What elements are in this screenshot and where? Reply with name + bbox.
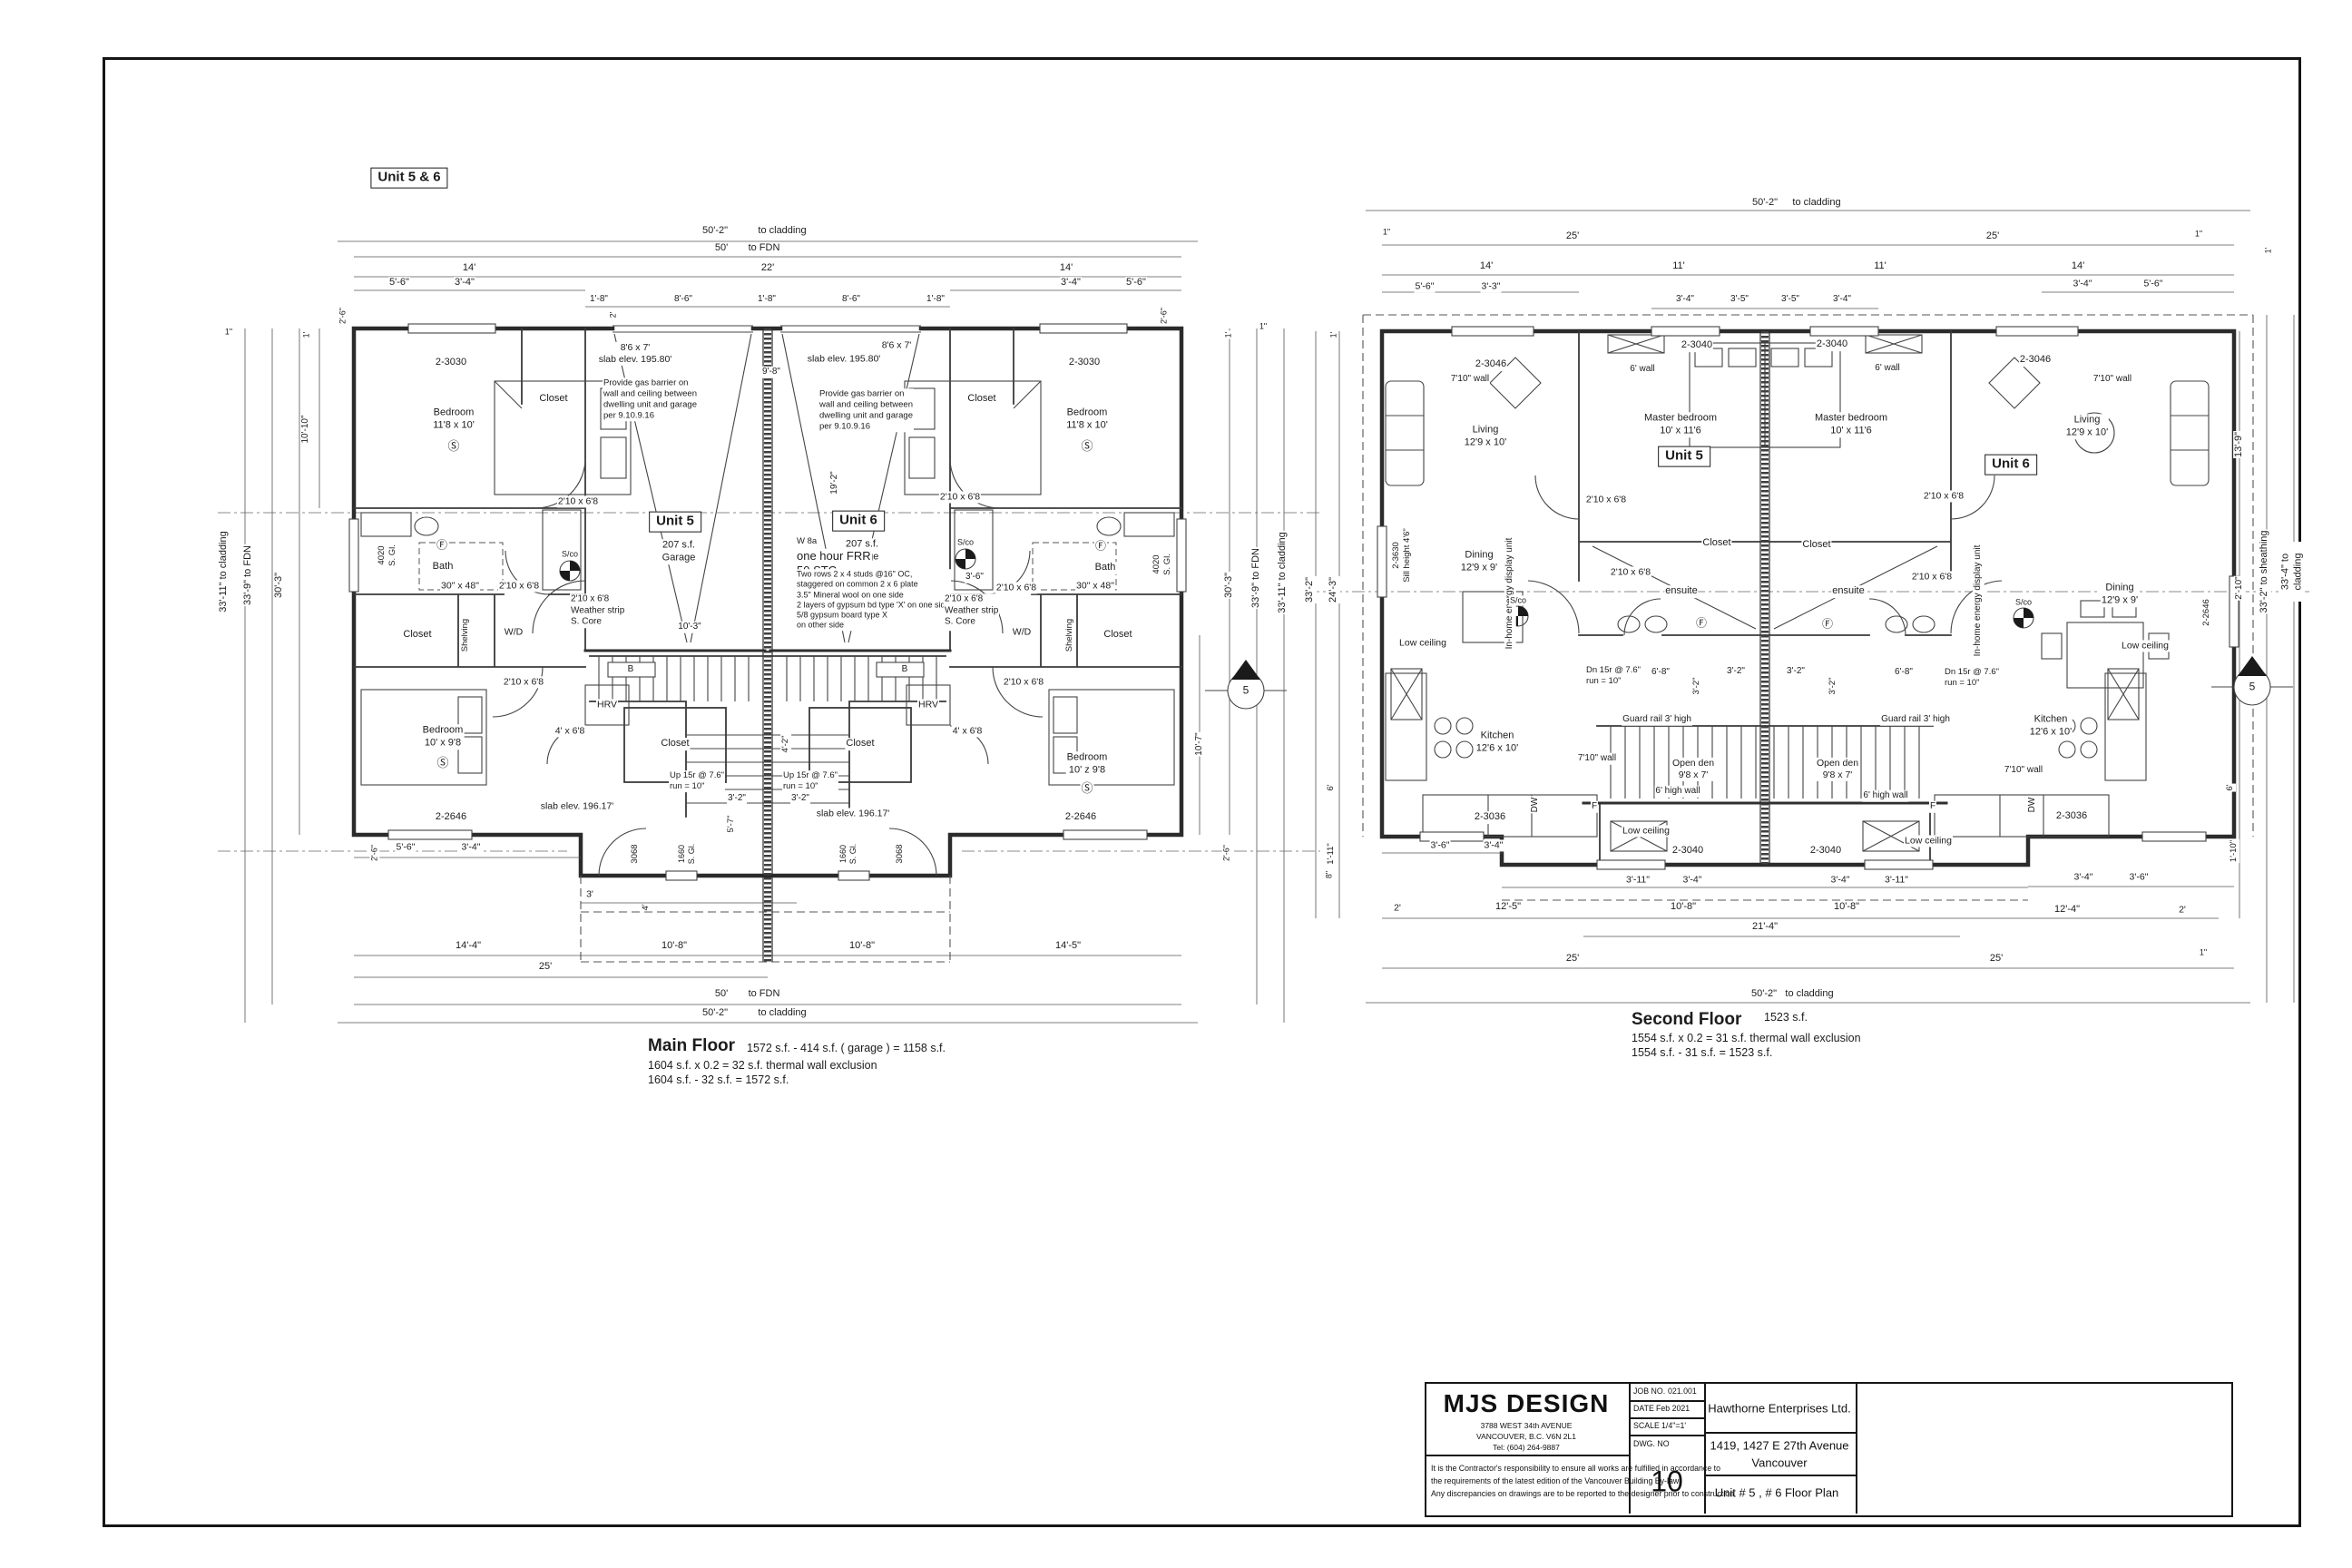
plan-label: Closet: [538, 393, 568, 406]
plan-label: 10'-8": [1670, 901, 1697, 914]
dwg-no-value: 10: [1651, 1465, 1683, 1499]
company-address-2: VANCOUVER, B.C. V6N 2L1: [1476, 1432, 1576, 1441]
plan-label: Master bedroom 10' x 11'6: [1643, 412, 1718, 437]
dwg-no-label: DWG. NO: [1633, 1439, 1670, 1448]
company-name: MJS DESIGN: [1444, 1389, 1610, 1418]
plan-label: Low ceiling: [2121, 640, 2170, 652]
plan-label: 50': [714, 988, 729, 1001]
plan-label: Low ceiling: [1904, 835, 1953, 847]
plan-label: 33'-2" to sheathing: [2259, 529, 2271, 613]
plan-label: 3'-4": [1484, 839, 1504, 851]
plan-label: 13'-9": [2233, 431, 2246, 458]
plan-label: Unit 6: [832, 511, 885, 532]
disclaimer-line-2: the requirements of the latest edition o…: [1431, 1476, 1679, 1485]
plan-label: 14': [462, 262, 476, 275]
plan-label: Ⓕ: [1695, 617, 1708, 631]
plan-label: F: [1591, 801, 1598, 813]
date-value: Feb 2021: [1656, 1404, 1690, 1413]
plan-label: 8'6 x 7': [881, 339, 913, 351]
plan-label: Dining 12'9 x 9': [2101, 582, 2139, 607]
plan-label: 8": [1324, 870, 1334, 879]
plan-label: 14': [2071, 260, 2085, 273]
plan-label: 3'-4": [1675, 294, 1695, 306]
plan-label: 3'-2": [1691, 677, 1702, 696]
plan-label: 5'-6": [388, 277, 410, 289]
plan-label: 1604 s.f. x 0.2 = 32 s.f. thermal wall e…: [647, 1059, 878, 1073]
plan-label: 1'-8": [589, 294, 609, 306]
plan-label: 3'-2": [1726, 666, 1746, 678]
plan-label: Ⓢ: [436, 756, 449, 770]
plan-label: Master bedroom 10' x 11'6: [1814, 412, 1888, 437]
plan-label: Unit 6: [1984, 455, 2037, 475]
plan-label: 3'-2": [790, 793, 810, 805]
plan-label: Ⓕ: [436, 539, 448, 553]
plan-label: 6'-8": [1894, 667, 1914, 679]
plan-label: In-home energy display unit: [1973, 544, 1984, 658]
plan-label: 3'-2": [1786, 666, 1806, 678]
plan-label: 1660 S. Gl.: [677, 843, 698, 866]
plan-label: Low ceiling: [1398, 637, 1447, 649]
plan-label: 2': [608, 311, 618, 319]
plan-label: to cladding: [1784, 988, 1834, 1001]
disclaimer-line-3: Any discrepancies on drawings are to be …: [1431, 1489, 1734, 1498]
plan-label: 6' high wall: [1654, 786, 1700, 798]
plan-label: 2-3036: [1474, 811, 1506, 824]
project-address-2: Vancouver: [1751, 1456, 1807, 1470]
plan-label: to cladding: [1791, 197, 1841, 210]
plan-label: 207 s.f. Garage: [661, 539, 697, 564]
plan-label: Second Floor: [1631, 1009, 1742, 1031]
plan-label: W/D: [504, 626, 524, 638]
plan-label: 5'-6": [1415, 280, 1436, 292]
plan-label: 14'-5": [1054, 940, 1082, 953]
plan-label: 7'10" wall: [1577, 753, 1617, 765]
plan-label: 25': [1565, 953, 1580, 965]
plan-label: 4020 S. Gl.: [1151, 553, 1173, 576]
plan-label: In-home energy display unit: [1504, 537, 1516, 651]
plan-label: 1604 s.f. - 32 s.f. = 1572 s.f.: [647, 1073, 789, 1088]
plan-label: 19'-2": [829, 470, 841, 495]
plan-label: Main Floor: [647, 1035, 736, 1057]
plan-label: 3'-6": [1430, 839, 1451, 851]
plan-label: Low ceiling: [1622, 825, 1671, 837]
plan-label: 2'10 x 6'8: [1003, 676, 1044, 688]
plan-label: 5'-6": [1125, 277, 1147, 289]
plan-label: 2'10 x 6'8: [498, 580, 540, 592]
plan-label: 3'-6": [2129, 871, 2150, 883]
plan-label: 33'-11" to cladding: [1277, 531, 1289, 614]
plan-label: Closet: [1102, 629, 1132, 642]
plan-label: 14': [1059, 262, 1073, 275]
plan-label: HRV: [596, 699, 618, 710]
plan-label: 5: [2249, 681, 2257, 694]
plan-label: 3'-5": [1780, 294, 1800, 306]
plan-label: Bedroom 11'8 x 10': [1065, 407, 1109, 432]
plan-label: 5'-6": [396, 841, 416, 853]
plan-label: 14'-4": [455, 940, 482, 953]
plan-label: 3'-6": [965, 572, 985, 583]
plan-label: 1'-11": [1326, 842, 1337, 866]
plan-label: 11': [1873, 260, 1887, 273]
plan-label: S/co: [1509, 595, 1527, 605]
plan-label: 2'-6": [1159, 307, 1169, 325]
plan-label: 2-3040: [1681, 339, 1713, 352]
plan-label: 1554 s.f. x 0.2 = 31 s.f. thermal wall e…: [1631, 1032, 1862, 1046]
plan-label: 2'10 x 6'8 Weather strip S. Core: [570, 593, 625, 628]
job-no-label: JOB NO.: [1633, 1387, 1665, 1396]
plan-label: 5'-7": [726, 815, 737, 834]
plan-label: Unit 5 & 6: [370, 168, 447, 189]
plan-label: 21'-4": [1751, 921, 1779, 934]
plan-label: 2'-10": [2234, 575, 2246, 600]
plan-label: 50': [714, 242, 729, 255]
second-floor-drawing: [1307, 211, 2309, 1003]
plan-label: S/co: [956, 537, 975, 547]
plan-label: 4' x 6'8: [554, 725, 586, 737]
plan-label: 2-3046: [1475, 358, 1507, 371]
plan-label: Closet: [1801, 539, 1831, 552]
plan-label: 4': [641, 903, 652, 911]
plan-label: 1554 s.f. - 31 s.f. = 1523 s.f.: [1631, 1046, 1773, 1061]
plan-label: 4020 S. Gl.: [377, 544, 398, 567]
plan-label: 6' wall: [1629, 364, 1655, 376]
plan-label: Closet: [660, 738, 690, 750]
plan-label: 2-3630 Sill height 4'6": [1391, 527, 1413, 583]
plan-label: 7'10" wall: [2092, 374, 2132, 386]
plan-label: Dn 15r @ 7.6" run = 10": [1944, 667, 2000, 689]
plan-label: 2': [1393, 902, 1402, 914]
plan-label: 1660 S. Gl.: [838, 843, 859, 866]
plan-label: 1": [224, 327, 233, 337]
plan-label: Up 15r @ 7.6" run = 10": [782, 770, 838, 792]
plan-label: 3'-4": [454, 277, 475, 289]
plan-label: 10'-8": [661, 940, 688, 953]
plan-label: 33'-9" to FDN: [242, 544, 255, 606]
plan-label: slab elev. 196.17': [816, 808, 891, 819]
plan-label: to cladding: [757, 1007, 807, 1020]
plan-label: 2-2646: [1064, 811, 1097, 824]
plan-label: to FDN: [748, 988, 781, 1001]
company-address-1: 3788 WEST 34th AVENUE: [1481, 1421, 1573, 1430]
plan-label: DW: [2027, 797, 2039, 814]
plan-label: 24'-3": [1328, 576, 1340, 603]
plan-label: 3'-4": [2073, 871, 2094, 883]
plan-label: 2'10 x 6'8 Weather strip S. Core: [944, 593, 999, 628]
plan-label: 2-3046: [2019, 354, 2052, 367]
plan-label: 25': [1989, 953, 2004, 965]
plan-label: W/D: [1012, 626, 1032, 638]
plan-label: Ⓢ: [446, 439, 460, 454]
job-no-value: 021.001: [1668, 1387, 1697, 1396]
plan-label: Bedroom 10' z 9'8: [1066, 751, 1109, 777]
plan-label: Dining 12'9 x 9': [1460, 549, 1498, 574]
plan-label: Bedroom 11'8 x 10': [432, 407, 475, 432]
plan-label: 3'-4": [1832, 294, 1852, 306]
plan-label: 1523 s.f.: [1763, 1011, 1808, 1025]
plan-label: 9'-8": [761, 367, 781, 378]
plan-label: 4'-2": [780, 735, 791, 754]
plan-label: 3'-5": [1730, 294, 1749, 306]
plan-label: Closet: [402, 629, 432, 642]
plan-label: Provide gas barrier on wall and ceiling …: [818, 388, 914, 432]
plan-label: to FDN: [748, 242, 781, 255]
plan-label: 33'-4" to cladding: [2279, 542, 2305, 602]
plan-label: 6' wall: [1874, 363, 1900, 375]
plan-label: Open den 9'8 x 7': [1671, 758, 1715, 781]
plan-label: 2-2646: [2201, 598, 2212, 627]
plan-label: Dn 15r @ 7.6" run = 10": [1585, 665, 1641, 687]
plan-label: 3'-4": [461, 841, 482, 853]
plan-label: B: [901, 664, 909, 676]
plan-label: 2-3040: [1816, 338, 1848, 351]
plan-label: slab elev. 195.80': [807, 353, 882, 365]
plan-label: 2'-6": [369, 844, 379, 862]
plan-label: 1": [2194, 229, 2203, 239]
plan-label: Closet: [1701, 537, 1731, 550]
plan-label: Living 12'9 x 10': [2065, 414, 2109, 439]
plan-label: 3'-3": [1481, 280, 1502, 292]
plan-label: 33'-2": [1304, 576, 1317, 603]
plan-label: 6': [1326, 783, 1337, 791]
plan-label: 2'-6": [1221, 844, 1231, 862]
plan-label: 1': [1328, 331, 1338, 339]
plan-label: Guard rail 3' high: [1622, 714, 1692, 726]
plan-label: ensuite: [1831, 585, 1865, 598]
plan-label: 10'-3": [677, 622, 701, 633]
plan-label: 3'-4": [1060, 277, 1082, 289]
plan-label: 2-3036: [2055, 810, 2088, 823]
plan-label: slab elev. 196.17': [540, 800, 615, 812]
plan-label: 25': [1565, 230, 1580, 243]
plan-label: 22': [760, 262, 775, 275]
main-floor-drawing: [218, 241, 1320, 1023]
plan-label: ensuite: [1664, 585, 1698, 598]
plan-label: 4' x 6'8: [952, 725, 984, 737]
plan-label: Two rows 2 x 4 studs @16" OC, staggered …: [796, 569, 951, 631]
plan-label: 5'-6": [2143, 278, 2164, 289]
plan-label: 25': [538, 961, 553, 974]
plan-label: 2-3040: [1809, 845, 1842, 857]
plan-label: F: [1929, 801, 1936, 813]
plan-label: 12'-4": [2053, 904, 2081, 916]
plan-label: 50'-2": [701, 225, 729, 238]
plan-label: 10'-7": [1194, 731, 1206, 756]
plan-label: 1": [1259, 321, 1268, 331]
plan-label: Ⓢ: [1080, 781, 1093, 796]
plan-label: Up 15r @ 7.6" run = 10": [669, 770, 725, 792]
plan-label: 2'10 x 6'8: [503, 676, 544, 688]
plan-label: 30'-3": [273, 572, 286, 599]
plan-label: 2-2646: [435, 811, 467, 824]
plan-label: 1572 s.f. - 414 s.f. ( garage ) = 1158 s…: [746, 1042, 946, 1056]
plan-label: 3'-4": [1682, 874, 1703, 886]
plan-label: Unit 5: [1658, 446, 1710, 467]
plan-label: 8'-6": [841, 294, 861, 306]
plan-label: 1'-8": [757, 294, 777, 306]
plan-label: 2'10 x 6'8: [1610, 566, 1651, 578]
plan-label: 3068: [630, 843, 641, 864]
plan-label: Kitchen 12'6 x 10': [2029, 713, 2073, 739]
plan-label: 3'-11": [1884, 874, 1909, 886]
plan-label: 50'-2": [1750, 988, 1778, 1001]
scale-value: 1/4"=1': [1661, 1421, 1686, 1430]
plan-label: W 8a: [796, 536, 818, 547]
plan-label: 3'-2": [1828, 677, 1838, 696]
plan-label: Shelving: [1064, 618, 1075, 652]
plan-label: 1': [2263, 247, 2273, 255]
plan-label: to cladding: [757, 225, 807, 238]
plan-label: 2'10 x 6'8: [1585, 494, 1627, 505]
plan-label: 8'6 x 7' slab elev. 195.80': [598, 342, 673, 366]
plan-label: 3': [585, 888, 594, 900]
plan-label: 12'-5": [1494, 901, 1522, 914]
plan-label: 3'-11": [1625, 874, 1651, 886]
plan-label: 25': [1985, 230, 2000, 243]
plan-label: Bedroom 10' x 9'8: [422, 724, 465, 750]
sheet-title: Unit # 5 , # 6 Floor Plan: [1715, 1486, 1839, 1500]
plan-label: 10'-8": [1833, 901, 1860, 914]
plan-label: Open den 9'8 x 7': [1816, 758, 1859, 781]
plan-label: 7'10" wall: [2004, 765, 2043, 777]
plan-label: 1': [1223, 331, 1233, 339]
plan-label: 1'-10": [2229, 839, 2239, 863]
plan-label: 2'-6": [338, 307, 348, 325]
plan-label: Bath: [1094, 562, 1117, 574]
plan-label: 2'10 x 6'8: [995, 582, 1037, 593]
plan-label: 5: [1242, 684, 1250, 698]
plan-label: 33'-9" to FDN: [1250, 547, 1263, 609]
plan-label: 10'-10": [300, 414, 312, 444]
plan-label: 33'-11" to cladding: [218, 530, 230, 613]
plan-label: 30" x 48": [440, 580, 480, 592]
plan-label: 30'-3": [1223, 572, 1236, 599]
plan-label: DW: [1530, 797, 1542, 814]
plan-label: Ⓢ: [1080, 439, 1093, 454]
plan-label: 3'-2": [727, 793, 747, 805]
plan-label: S/co: [2014, 597, 2033, 607]
plan-label: 2'10 x 6'8: [939, 491, 981, 503]
plan-label: Ⓕ: [1821, 618, 1834, 632]
plan-label: Shelving: [460, 618, 471, 652]
client-name: Hawthorne Enterprises Ltd.: [1708, 1402, 1851, 1416]
plan-label: 30" x 48": [1075, 580, 1115, 592]
plan-label: 2-3040: [1671, 845, 1704, 857]
plan-label: HRV: [917, 699, 939, 710]
plan-label: Unit 5: [649, 512, 701, 533]
date-label: DATE: [1633, 1404, 1654, 1413]
plan-label: 1": [2199, 947, 2208, 957]
drawing-sheet: Unit 5 & 650'-2"to cladding50'to FDN14'2…: [0, 0, 2352, 1568]
plan-label: 10'-8": [848, 940, 876, 953]
plan-label: 3'-4": [1830, 874, 1851, 886]
plan-label: 6' high wall: [1862, 790, 1908, 802]
plan-label: 1'-8": [926, 294, 946, 306]
plan-label: 2': [2178, 904, 2187, 916]
plan-label: 50'-2": [1751, 197, 1779, 210]
plan-label: Ⓕ: [1094, 540, 1107, 554]
plan-label: 3'-4": [2073, 278, 2093, 289]
project-address-1: 1419, 1427 E 27th Avenue: [1710, 1439, 1848, 1453]
plan-label: 2'10 x 6'8: [1911, 571, 1953, 583]
plan-label: S/co: [561, 549, 579, 559]
company-tel: Tel: (604) 264-9887: [1493, 1443, 1560, 1452]
plan-label: 3068: [895, 843, 906, 864]
plan-label: 2'10 x 6'8: [1923, 490, 1965, 502]
plan-label: 11': [1671, 260, 1686, 273]
plan-label: 14': [1479, 260, 1494, 273]
plan-label: 6'-8": [1651, 667, 1671, 679]
plan-label: 8'-6": [673, 294, 693, 306]
plan-label: Provide gas barrier on wall and ceiling …: [603, 377, 698, 421]
plan-label: 50'-2": [701, 1007, 729, 1020]
plan-label: 2'10 x 6'8: [557, 495, 599, 507]
plan-label: Kitchen 12'6 x 10': [1475, 730, 1519, 755]
plan-label: 1': [301, 331, 311, 339]
plan-label: Guard rail 3' high: [1880, 714, 1951, 726]
scale-label: SCALE: [1633, 1421, 1660, 1430]
plan-label: Closet: [966, 393, 996, 406]
plan-label: 2-3030: [1068, 357, 1101, 369]
plan-label: Closet: [845, 738, 875, 750]
plan-label: 7'10" wall: [1450, 374, 1490, 386]
plan-label: 2-3030: [435, 357, 467, 369]
plan-label: B: [627, 664, 635, 676]
plan-label: 1": [1382, 227, 1391, 237]
plan-label: 6': [2225, 783, 2236, 791]
plan-label: Bath: [432, 561, 455, 573]
plan-label: Living 12'9 x 10': [1464, 424, 1507, 449]
